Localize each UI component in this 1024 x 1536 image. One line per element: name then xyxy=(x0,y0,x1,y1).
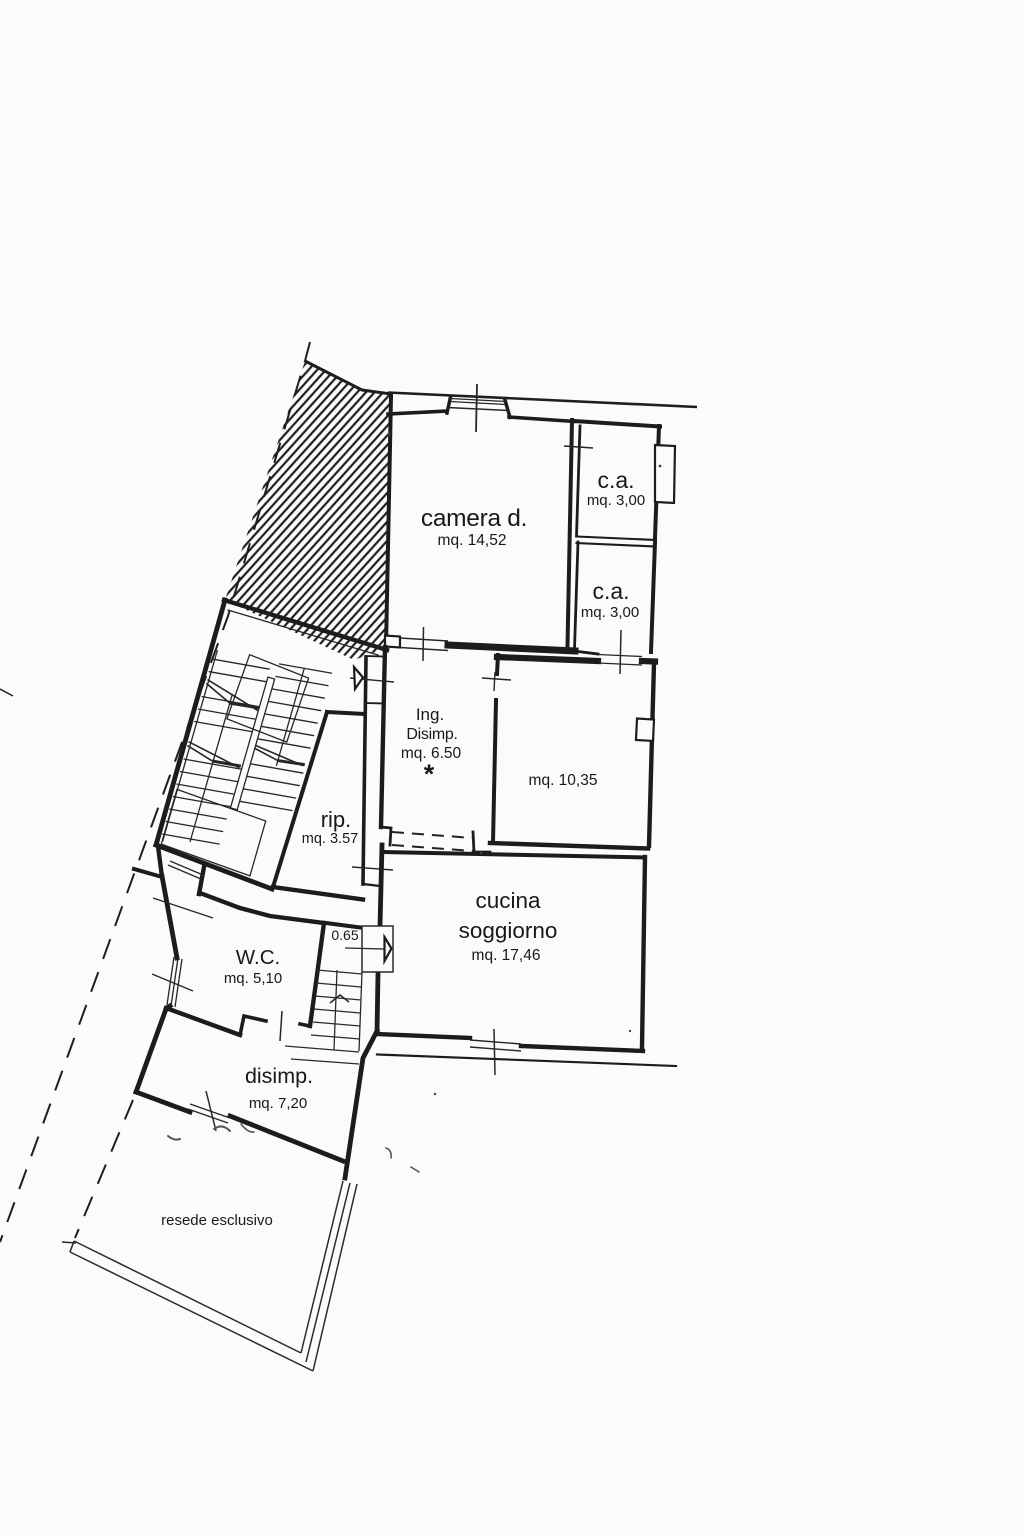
svg-text:Disimp.: Disimp. xyxy=(406,726,457,743)
svg-text:rip.: rip. xyxy=(321,807,352,832)
svg-text:*: * xyxy=(424,759,435,789)
svg-text:c.a.: c.a. xyxy=(592,578,629,604)
svg-text:0.65: 0.65 xyxy=(331,927,358,943)
svg-text:cucina: cucina xyxy=(475,888,541,913)
svg-text:soggiorno: soggiorno xyxy=(459,918,558,943)
svg-text:mq. 3.57: mq. 3.57 xyxy=(302,831,358,847)
svg-text:mq. 3,00: mq. 3,00 xyxy=(581,604,639,621)
svg-text:mq. 3,00: mq. 3,00 xyxy=(587,492,645,509)
svg-text:disimp.: disimp. xyxy=(245,1064,313,1088)
svg-text:c.a.: c.a. xyxy=(597,467,634,493)
svg-text:mq. 14,52: mq. 14,52 xyxy=(438,532,507,549)
svg-text:Ing.: Ing. xyxy=(416,705,444,724)
svg-text:resede esclusivo: resede esclusivo xyxy=(161,1212,273,1229)
svg-text:mq. 7,20: mq. 7,20 xyxy=(249,1095,307,1112)
svg-text:mq. 5,10: mq. 5,10 xyxy=(224,970,282,987)
svg-text:W.C.: W.C. xyxy=(236,946,280,969)
svg-text:camera d.: camera d. xyxy=(421,505,527,532)
svg-text:mq. 17,46: mq. 17,46 xyxy=(472,947,541,964)
svg-text:mq. 10,35: mq. 10,35 xyxy=(529,772,598,789)
